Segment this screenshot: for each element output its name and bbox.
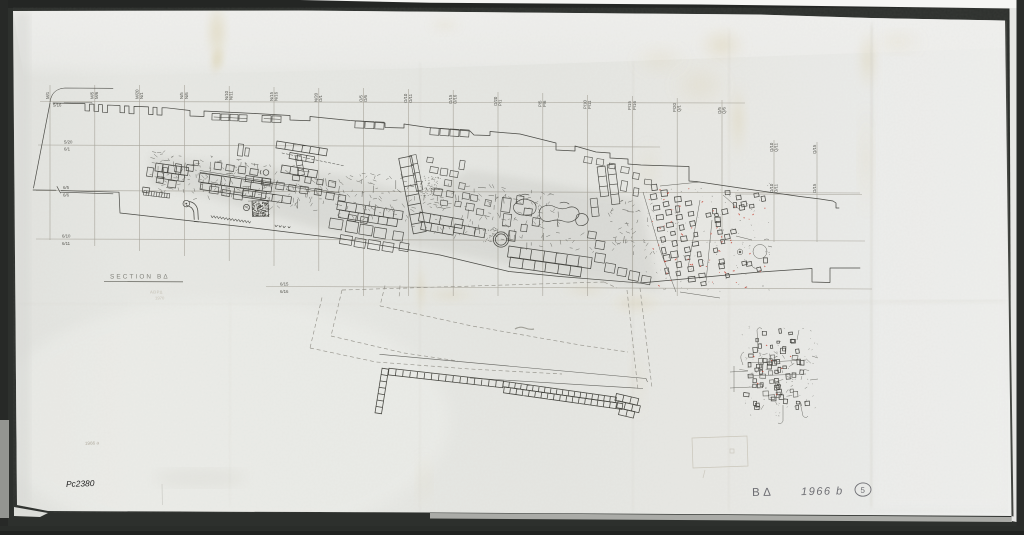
svg-text:ΒΔ: ΒΔ	[752, 487, 775, 499]
svg-text:ΑΒΡΔ: ΑΒΡΔ	[150, 290, 163, 295]
svg-text:SECTION BΔ: SECTION BΔ	[110, 274, 170, 281]
svg-text:1970: 1970	[155, 296, 165, 301]
svg-text:Q/15: Q/15	[812, 144, 817, 154]
svg-text:6/16: 6/16	[280, 289, 289, 294]
svg-text:M/1: M/1	[45, 91, 50, 99]
svg-text:N/16: N/16	[273, 91, 278, 101]
svg-text:6/15: 6/15	[280, 282, 289, 287]
svg-text:P/6: P/6	[542, 100, 547, 107]
svg-text:M/6: M/6	[94, 91, 99, 99]
svg-text:6/11: 6/11	[62, 241, 71, 246]
svg-text:Q/6: Q/6	[721, 106, 726, 114]
svg-text:1966 b: 1966 b	[801, 485, 844, 498]
svg-text:N/11: N/11	[229, 91, 234, 100]
svg-text:N/1: N/1	[139, 92, 144, 99]
svg-text:1966 a: 1966 a	[85, 440, 100, 446]
svg-text:P/1: P/1	[497, 99, 502, 106]
svg-text:O/6: O/6	[363, 94, 368, 102]
svg-text:6/10: 6/10	[62, 234, 71, 239]
svg-text:Q/11: Q/11	[773, 142, 778, 152]
svg-text:6/6: 6/6	[63, 193, 70, 198]
svg-text:5: 5	[860, 486, 865, 495]
svg-text:O/11: O/11	[408, 93, 413, 103]
svg-text:Pc2380: Pc2380	[66, 478, 95, 489]
svg-text:O/15: O/15	[812, 183, 817, 193]
svg-text:P/16: P/16	[632, 101, 637, 110]
svg-text:6/5: 6/5	[63, 185, 70, 190]
svg-text:P/11: P/11	[587, 100, 592, 109]
svg-text:O/1: O/1	[318, 94, 323, 102]
svg-text:N/6: N/6	[184, 92, 189, 99]
svg-text:5/20: 5/20	[64, 140, 73, 145]
svg-text:6/1: 6/1	[64, 147, 71, 152]
svg-text:Q/1: Q/1	[677, 104, 682, 112]
svg-text:O/16: O/16	[453, 94, 458, 104]
svg-text:O/11: O/11	[773, 183, 778, 193]
